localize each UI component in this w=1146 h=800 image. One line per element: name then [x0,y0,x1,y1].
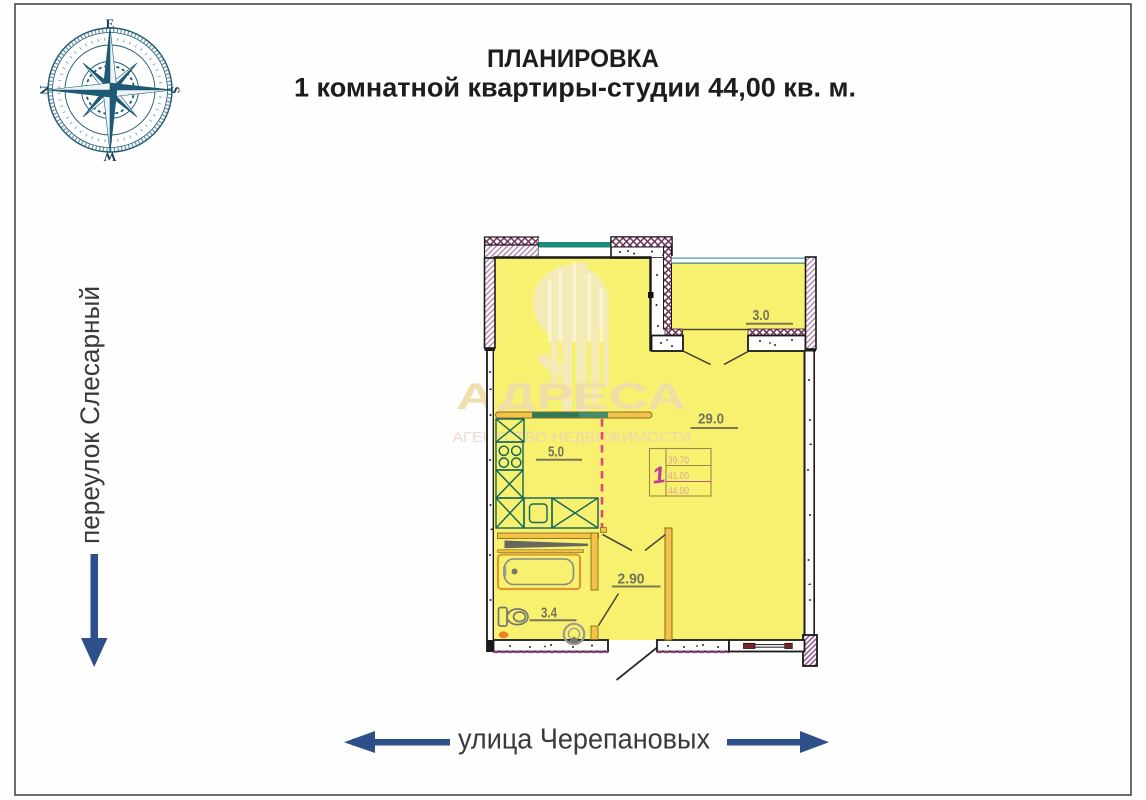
svg-text:N: N [37,85,52,95]
svg-text:41.00: 41.00 [668,471,689,482]
svg-text:W: W [104,150,117,165]
svg-text:3.0: 3.0 [753,308,770,324]
svg-text:29.0: 29.0 [698,411,724,428]
svg-text:39.70: 39.70 [668,456,689,467]
svg-text:3.4: 3.4 [541,606,557,622]
svg-text:2.90: 2.90 [618,572,645,588]
svg-text:ПЛАНИРОВКА: ПЛАНИРОВКА [487,45,659,73]
svg-text:переулок Слесарный: переулок Слесарный [75,286,105,544]
svg-text:улица Черепановых: улица Черепановых [458,724,710,756]
svg-text:1 комнатной квартиры-студии 44: 1 комнатной квартиры-студии 44,00 кв. м. [294,73,856,103]
svg-text:E: E [106,16,115,31]
svg-text:S: S [168,86,183,93]
svg-text:44.00: 44.00 [668,486,689,497]
svg-text:5.0: 5.0 [548,445,564,461]
